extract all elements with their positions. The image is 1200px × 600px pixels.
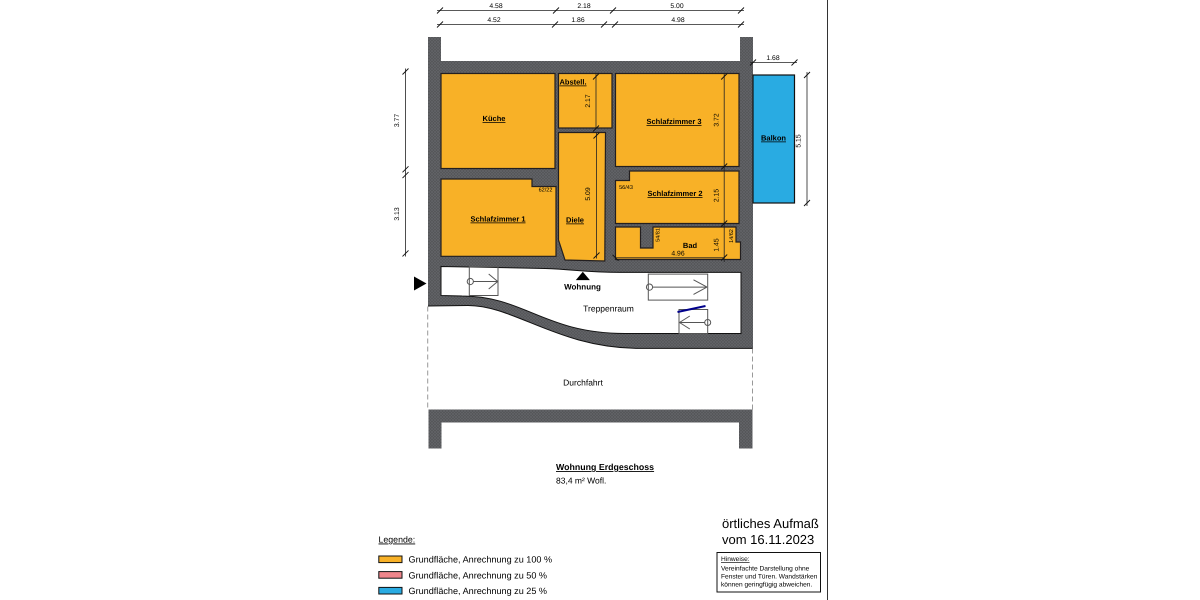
svg-text:Hinweise:: Hinweise: [721,556,750,563]
svg-text:können geringfügig abweichen.: können geringfügig abweichen. [721,582,812,589]
svg-text:örtliches Aufmaß: örtliches Aufmaß [722,516,819,531]
svg-text:Balkon: Balkon [761,134,786,143]
svg-text:5.15: 5.15 [796,134,803,147]
svg-text:2.17: 2.17 [585,94,592,107]
svg-text:Grundfläche, Anrechnung zu 25: Grundfläche, Anrechnung zu 25 % [409,586,548,596]
svg-text:56/43: 56/43 [619,185,633,191]
svg-text:Grundfläche, Anrechnung zu 50: Grundfläche, Anrechnung zu 50 % [409,570,548,580]
svg-text:Wohnung: Wohnung [564,283,601,292]
svg-text:Bad: Bad [683,241,698,250]
svg-text:3.72: 3.72 [714,113,721,126]
svg-text:Schlafzimmer 2: Schlafzimmer 2 [647,189,702,198]
svg-text:Diele: Diele [566,216,584,225]
svg-text:3.77: 3.77 [394,114,401,127]
svg-text:4.52: 4.52 [487,17,500,24]
svg-text:5.09: 5.09 [585,187,592,200]
svg-text:Durchfahrt: Durchfahrt [563,378,603,388]
svg-text:2.15: 2.15 [714,189,721,202]
svg-text:Schlafzimmer 1: Schlafzimmer 1 [470,215,525,224]
svg-text:Legende:: Legende: [379,535,416,545]
svg-text:2.18: 2.18 [577,3,590,10]
svg-text:Vereinfachte Darstellung ohne: Vereinfachte Darstellung ohne [721,566,810,573]
svg-text:vom 16.11.2023: vom 16.11.2023 [722,532,814,547]
svg-text:Wohnung Erdgeschoss: Wohnung Erdgeschoss [556,462,654,472]
svg-text:Abstell.: Abstell. [559,78,586,87]
svg-text:Küche: Küche [483,114,506,123]
svg-text:Fenster und Türen. Wandstärken: Fenster und Türen. Wandstärken [721,574,818,581]
svg-text:62/22: 62/22 [539,188,553,194]
svg-text:4.58: 4.58 [489,3,502,10]
svg-text:Schlafzimmer 3: Schlafzimmer 3 [646,117,701,126]
svg-text:4.96: 4.96 [671,251,684,258]
svg-text:5.00: 5.00 [670,3,683,10]
svg-text:54/81: 54/81 [656,228,662,242]
svg-text:1.86: 1.86 [571,17,584,24]
svg-text:1.45: 1.45 [714,238,721,251]
svg-text:83,4 m² Wofl.: 83,4 m² Wofl. [556,476,606,486]
svg-text:Grundfläche, Anrechnung zu 100: Grundfläche, Anrechnung zu 100 % [409,555,553,565]
svg-text:1.68: 1.68 [766,55,779,62]
svg-text:14/62: 14/62 [729,229,735,243]
svg-text:4.98: 4.98 [671,17,684,24]
svg-text:Treppenraum: Treppenraum [583,304,634,314]
svg-text:3.13: 3.13 [394,207,401,220]
